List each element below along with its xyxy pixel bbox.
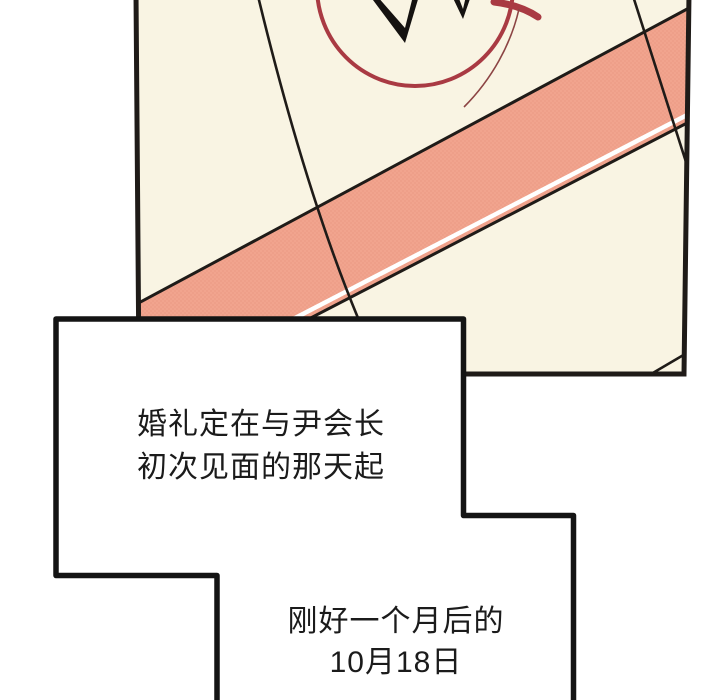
speech-line: 婚礼定在与尹会长 bbox=[128, 403, 394, 446]
speech-line: 初次见面的那天起 bbox=[128, 446, 394, 489]
comic-page: 婚礼定在与尹会长 初次见面的那天起 刚好一个月后的 10月18日 bbox=[0, 0, 720, 700]
speech-line: 刚好一个月后的 bbox=[263, 601, 529, 642]
speech-line: 10月18日 bbox=[263, 642, 529, 683]
comic-panel-art bbox=[0, 0, 720, 700]
speech-text-secondary: 刚好一个月后的 10月18日 bbox=[263, 601, 529, 683]
speech-text-primary: 婚礼定在与尹会长 初次见面的那天起 bbox=[128, 403, 394, 489]
